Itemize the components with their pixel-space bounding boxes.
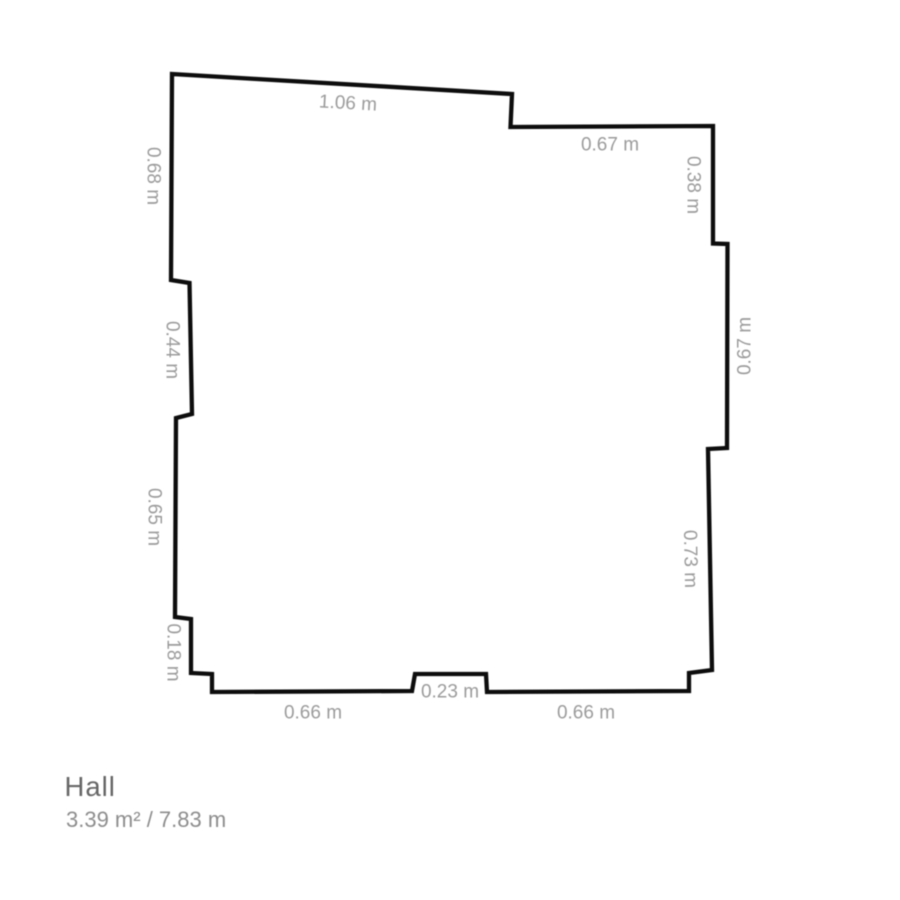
svg-text:0.66 m: 0.66 m <box>284 703 342 724</box>
svg-text:0.23 m: 0.23 m <box>421 682 479 703</box>
svg-text:0.67 m: 0.67 m <box>581 135 639 156</box>
svg-text:1.06 m: 1.06 m <box>318 91 377 115</box>
svg-text:0.73 m: 0.73 m <box>679 530 701 588</box>
svg-text:Hall: Hall <box>65 771 116 802</box>
svg-text:0.67 m: 0.67 m <box>735 317 756 375</box>
svg-text:3.39 m² / 7.83 m: 3.39 m² / 7.83 m <box>66 807 226 832</box>
svg-text:0.18 m: 0.18 m <box>163 623 184 681</box>
svg-text:0.68 m: 0.68 m <box>143 147 164 205</box>
svg-text:0.65 m: 0.65 m <box>144 488 165 546</box>
svg-text:0.44 m: 0.44 m <box>162 321 183 379</box>
svg-text:0.66 m: 0.66 m <box>557 703 615 724</box>
svg-text:0.38 m: 0.38 m <box>683 156 704 214</box>
